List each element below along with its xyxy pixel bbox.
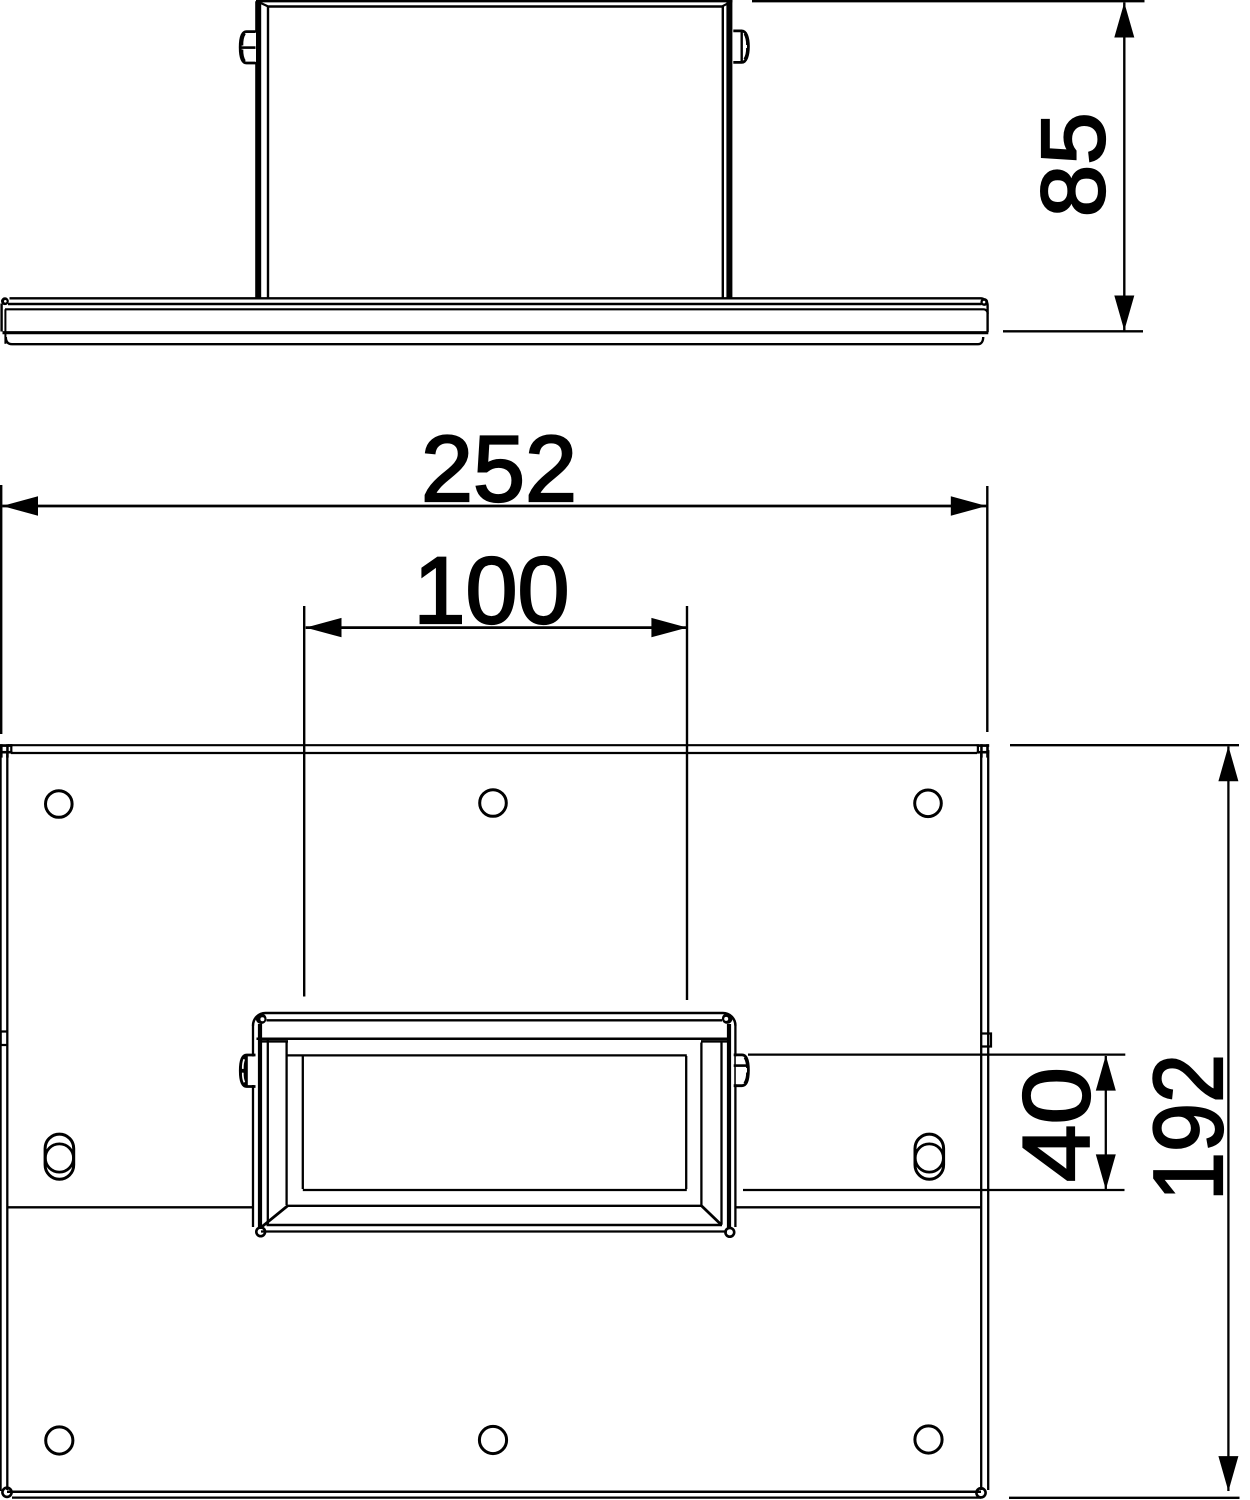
svg-text:40: 40 <box>1004 1067 1110 1182</box>
svg-text:85: 85 <box>1024 112 1124 217</box>
svg-text:192: 192 <box>1133 1054 1243 1201</box>
svg-text:252: 252 <box>421 416 577 521</box>
svg-text:100: 100 <box>414 538 570 644</box>
